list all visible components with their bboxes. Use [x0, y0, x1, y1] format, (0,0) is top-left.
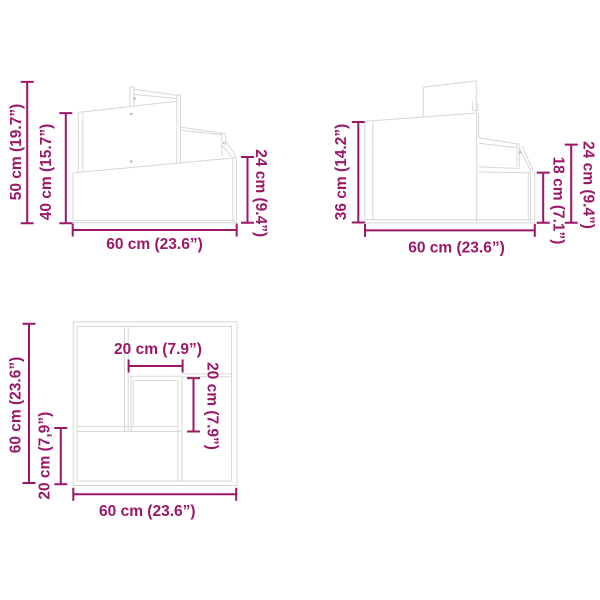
svg-text:18 cm (7.1”): 18 cm (7.1”) [549, 157, 566, 245]
svg-text:24 cm (9.4”): 24 cm (9.4”) [252, 149, 269, 237]
svg-text:60 cm (23.6”): 60 cm (23.6”) [7, 357, 24, 454]
svg-text:20 cm (7,9”): 20 cm (7,9”) [37, 412, 54, 500]
svg-text:50 cm (19.7”): 50 cm (19.7”) [8, 104, 25, 201]
svg-text:60 cm (23.6”): 60 cm (23.6”) [408, 239, 505, 256]
svg-text:20 cm (7.9”): 20 cm (7.9”) [114, 341, 202, 358]
svg-text:40 cm (15.7”): 40 cm (15.7”) [38, 124, 55, 221]
svg-text:20 cm (7.9”): 20 cm (7.9”) [204, 362, 221, 450]
svg-text:60 cm (23.6”): 60 cm (23.6”) [99, 503, 196, 520]
svg-text:24 cm (9.4”): 24 cm (9.4”) [579, 141, 596, 229]
svg-text:60 cm (23.6”): 60 cm (23.6”) [106, 236, 203, 253]
svg-text:36 cm (14.2”): 36 cm (14.2”) [333, 124, 350, 221]
